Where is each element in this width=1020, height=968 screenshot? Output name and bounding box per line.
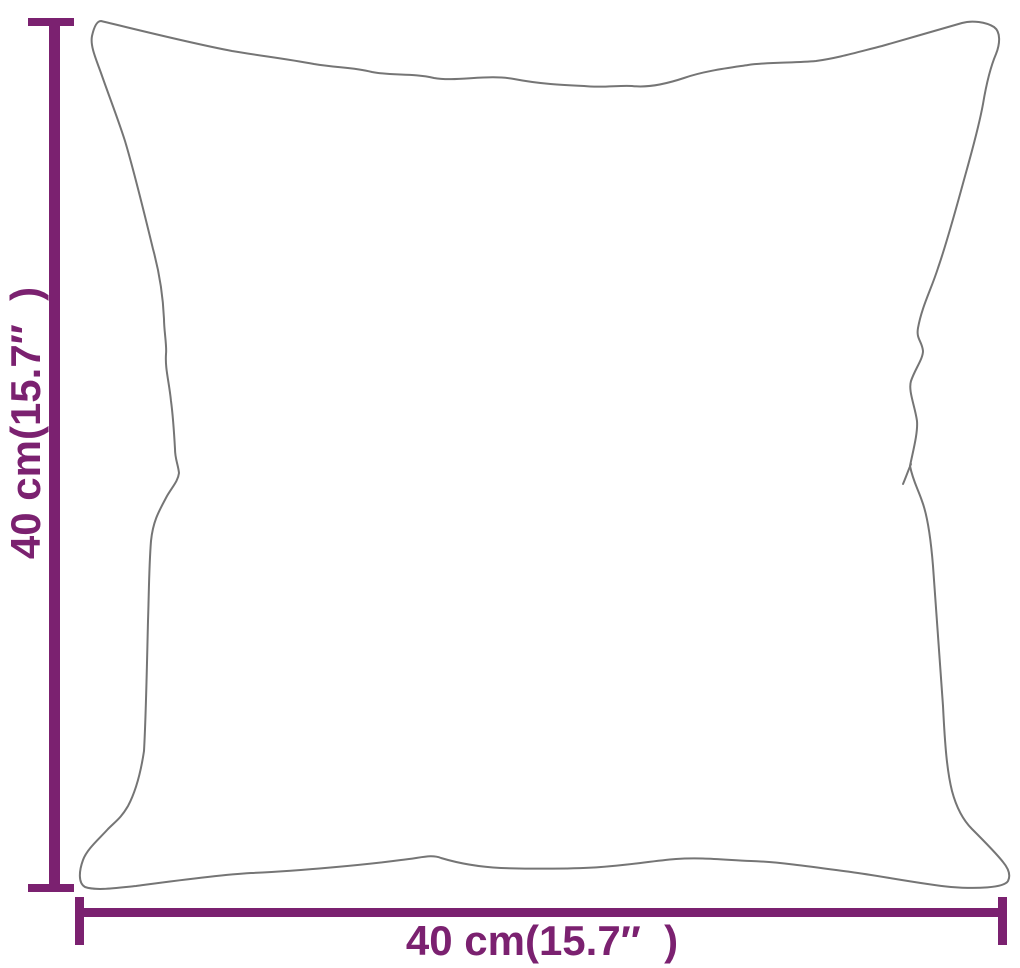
- width-dimension-label: 40 cm(15.7″ ): [406, 920, 678, 962]
- height-dimension-label: 40 cm(15.7″ ): [5, 287, 47, 559]
- width-dimension-line: [75, 908, 1007, 917]
- height-dimension-cap-bottom: [28, 884, 74, 892]
- pillow-outline-drawing: [0, 0, 1020, 968]
- pillow-crease-line: [903, 464, 911, 484]
- height-dimension-cap-top: [28, 18, 74, 26]
- pillow-outline-path: [80, 21, 1009, 889]
- width-dimension-cap-right: [998, 897, 1007, 945]
- height-dimension-line: [49, 18, 60, 892]
- product-dimension-image: 40 cm(15.7″ ) 40 cm(15.7″ ): [0, 0, 1020, 968]
- width-dimension-cap-left: [75, 897, 84, 945]
